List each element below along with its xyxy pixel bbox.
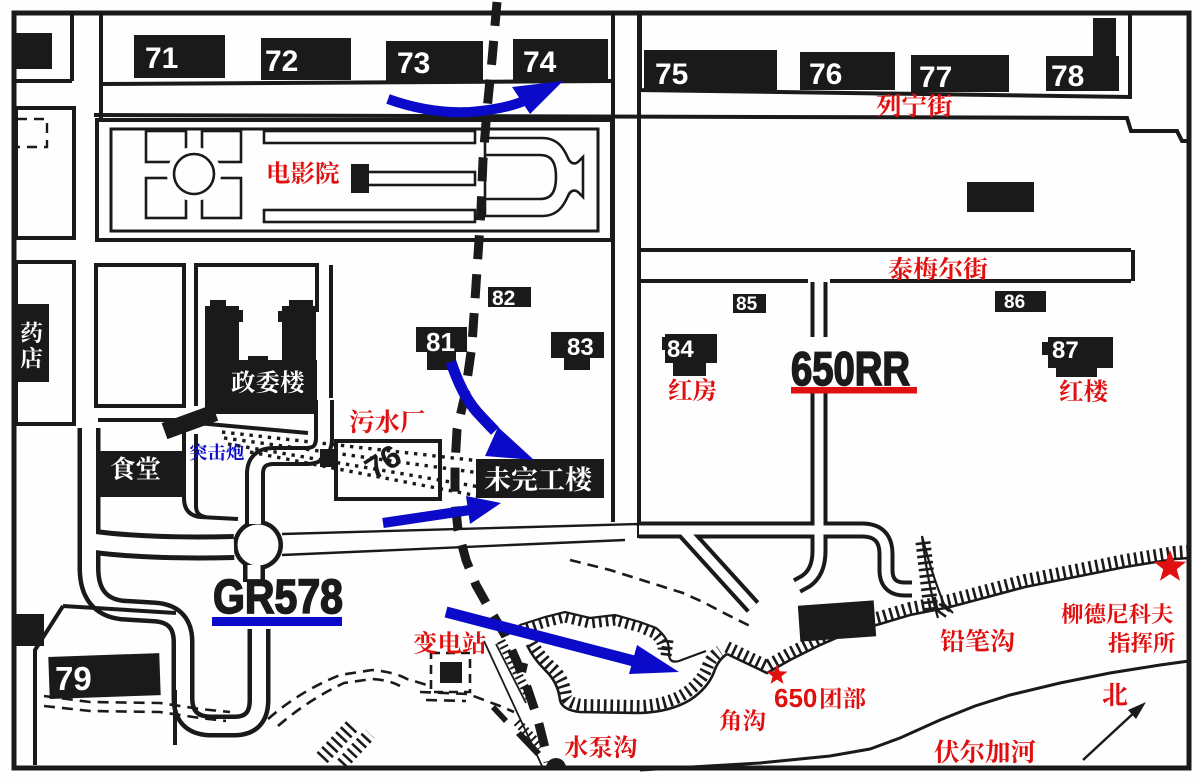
svg-text:85: 85 xyxy=(736,294,758,315)
svg-text:83: 83 xyxy=(567,334,594,361)
svg-text:72: 72 xyxy=(265,45,298,78)
svg-text:GR578: GR578 xyxy=(213,571,343,624)
svg-text:81: 81 xyxy=(426,327,455,357)
svg-text:75: 75 xyxy=(655,58,688,91)
svg-text:74: 74 xyxy=(523,46,557,79)
svg-text:79: 79 xyxy=(55,660,92,697)
svg-text:76: 76 xyxy=(809,58,842,91)
svg-text:77: 77 xyxy=(919,61,952,94)
svg-text:78: 78 xyxy=(1051,60,1084,93)
svg-text:86: 86 xyxy=(1004,292,1025,313)
svg-text:84: 84 xyxy=(667,336,694,363)
svg-text:82: 82 xyxy=(492,287,515,310)
svg-text:73: 73 xyxy=(397,47,430,80)
svg-text:87: 87 xyxy=(1052,337,1079,364)
svg-text:71: 71 xyxy=(145,42,178,75)
svg-text:650: 650 xyxy=(774,683,817,713)
